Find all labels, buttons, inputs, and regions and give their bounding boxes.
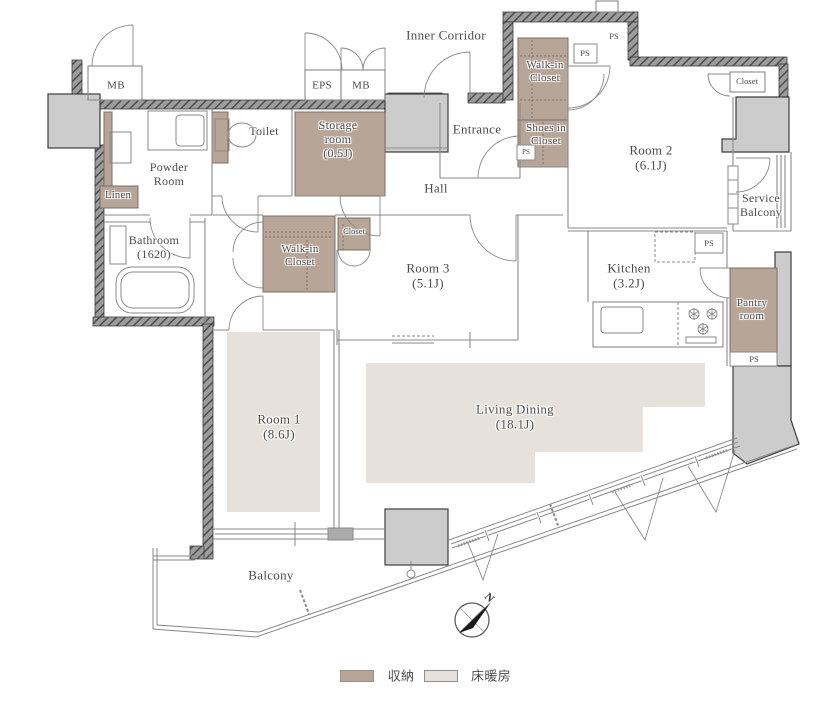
room-size: (3.2J): [607, 276, 650, 291]
burner-icon: [689, 308, 717, 335]
entrance-label: Entrance: [453, 121, 502, 136]
kitchen-sink-icon: [601, 307, 643, 333]
service-balcony-label: Service Balcony: [732, 191, 790, 219]
legend-storage-label: 収納: [388, 668, 415, 683]
pantry-room-label: Pantry room: [730, 297, 774, 323]
storage-room-label: Storage room (0.5J): [306, 118, 370, 160]
compass-icon: [455, 602, 491, 637]
closet-mid-label: Closet: [343, 226, 365, 236]
ps-label-1: PS: [609, 31, 618, 41]
room-name: Living Dining: [476, 402, 554, 417]
room-size: (18.1J): [476, 417, 554, 432]
room3-label: Room 3 (5.1J): [406, 261, 449, 292]
bathroom-label: Bathroom (1620): [129, 233, 179, 261]
washer-icon: [110, 132, 131, 163]
room-size: (1620): [129, 247, 179, 261]
room-name: Bathroom: [129, 233, 179, 247]
room-name: Kitchen: [607, 261, 650, 276]
mb-left-label: MB: [107, 80, 125, 93]
room-name: Room 2: [629, 143, 672, 158]
ps-label-2: PS: [580, 48, 589, 58]
walk-in-closet-mid-label: Walk-in Closet: [274, 243, 326, 269]
legend-floor-heating-label: 床暖房: [471, 668, 511, 683]
linen-label: Linen: [105, 190, 131, 202]
legend-storage-swatch: [340, 670, 374, 682]
floorplan-graphic: [0, 0, 840, 703]
legend-floor-heating-swatch: [424, 670, 458, 682]
mb-top-label: MB: [352, 80, 370, 93]
ps-label-4: PS: [704, 238, 713, 248]
shoes-in-closet-label: Shoes in Closet: [518, 122, 574, 148]
room2-label: Room 2 (6.1J): [629, 143, 672, 174]
toilet-label: Toilet: [249, 124, 279, 138]
walk-in-closet-top-label: Walk-in Closet: [519, 59, 571, 85]
ps-label-5: PS: [749, 354, 758, 364]
fridge-space: [655, 232, 695, 262]
hall-label: Hall: [424, 180, 448, 195]
room2-closet-label: Closet: [736, 76, 758, 86]
ps-label-3: PS: [522, 148, 530, 156]
room-size: (6.1J): [629, 158, 672, 173]
room-size: (0.5J): [306, 146, 370, 160]
eps-label: EPS: [312, 80, 332, 93]
room-name: Room 3: [406, 261, 449, 276]
vanity-sink-icon: [148, 111, 207, 150]
room-name: Room 1: [257, 412, 300, 427]
inner-corridor-label: Inner Corridor: [406, 27, 486, 42]
room-size: (8.6J): [257, 427, 300, 442]
room1-label: Room 1 (8.6J): [257, 412, 300, 443]
stove-icon: [678, 302, 717, 347]
kitchen-label: Kitchen (3.2J): [607, 261, 650, 292]
room-size: (5.1J): [406, 276, 449, 291]
floor-plan: Inner Corridor MB EPS MB Toilet Storage …: [0, 0, 840, 703]
room-name: Storage room: [309, 118, 367, 146]
living-dining-label: Living Dining (18.1J): [476, 402, 554, 433]
balcony-label: Balcony: [248, 567, 293, 582]
powder-room-label: Powder Room: [140, 160, 198, 188]
